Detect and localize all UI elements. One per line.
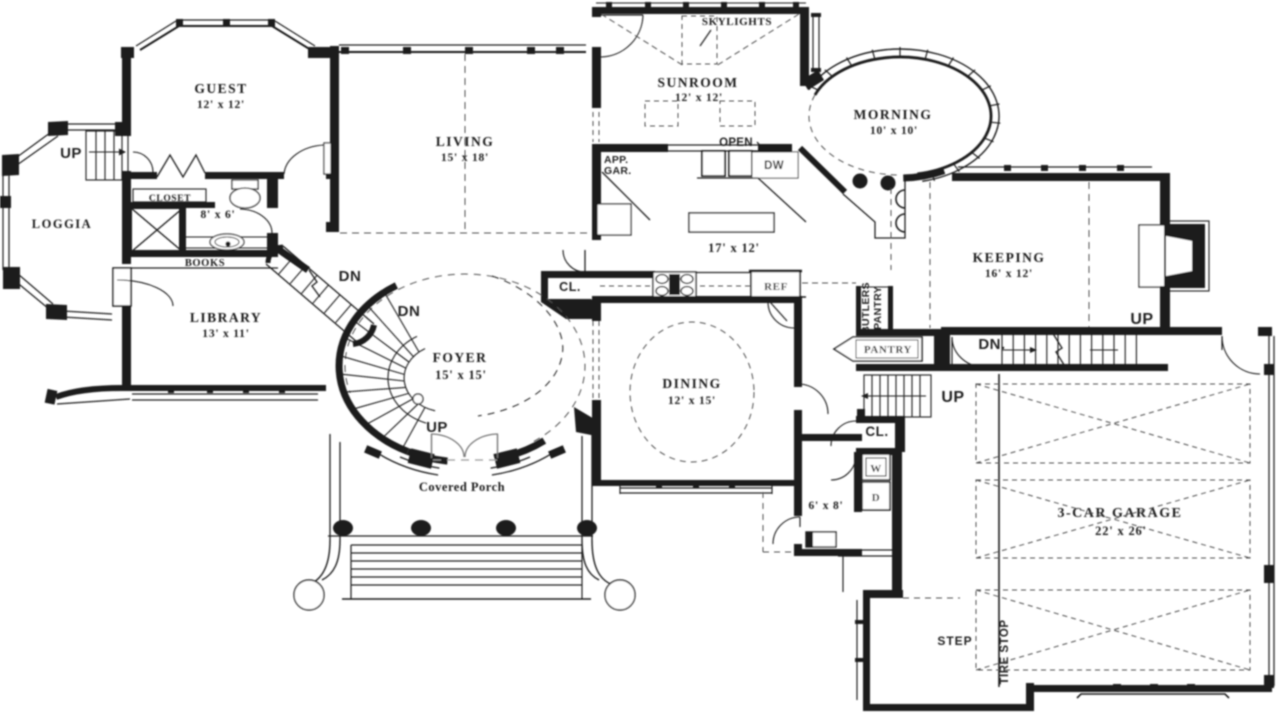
- svg-text:6' x 8': 6' x 8': [809, 500, 844, 512]
- svg-text:PANTRY: PANTRY: [872, 286, 884, 330]
- svg-text:DW: DW: [764, 160, 784, 172]
- svg-text:UP: UP: [426, 419, 448, 436]
- svg-text:REF: REF: [764, 281, 788, 293]
- svg-text:16' x 12': 16' x 12': [985, 268, 1033, 280]
- svg-text:KEEPING: KEEPING: [973, 250, 1046, 265]
- svg-text:GAR.: GAR.: [604, 165, 631, 177]
- svg-text:OPEN: OPEN: [719, 137, 753, 149]
- svg-text:12' x 12': 12' x 12': [197, 99, 245, 111]
- svg-text:DN: DN: [398, 303, 421, 320]
- svg-text:BUTLERS: BUTLERS: [860, 282, 872, 334]
- svg-text:LOGGIA: LOGGIA: [32, 217, 92, 231]
- svg-text:BOOKS: BOOKS: [185, 258, 225, 269]
- svg-text:12' x 15': 12' x 15': [668, 395, 716, 407]
- svg-text:10' x 10': 10' x 10': [870, 125, 918, 137]
- svg-text:W: W: [870, 463, 882, 475]
- svg-text:D: D: [872, 492, 881, 504]
- svg-text:STEP: STEP: [937, 634, 972, 648]
- svg-text:DINING: DINING: [662, 376, 721, 391]
- svg-text:15' x 15': 15' x 15': [435, 368, 487, 382]
- svg-text:22' x 26': 22' x 26': [1095, 524, 1147, 538]
- svg-text:MORNING: MORNING: [854, 107, 933, 122]
- svg-text:TIRE STOP: TIRE STOP: [999, 620, 1011, 685]
- svg-text:CL.: CL.: [865, 424, 888, 439]
- svg-text:LIBRARY: LIBRARY: [190, 310, 262, 325]
- svg-text:UP: UP: [60, 145, 82, 162]
- svg-text:17' x 12': 17' x 12': [708, 241, 760, 255]
- svg-text:GUEST: GUEST: [194, 81, 247, 96]
- svg-text:FOYER: FOYER: [433, 350, 488, 365]
- svg-text:12' x 12': 12' x 12': [675, 92, 723, 104]
- svg-text:SKYLIGHTS: SKYLIGHTS: [702, 16, 772, 28]
- svg-text:PANTRY: PANTRY: [864, 344, 912, 356]
- svg-text:UP: UP: [941, 389, 964, 406]
- svg-text:13' x 11': 13' x 11': [202, 328, 249, 340]
- svg-text:Covered Porch: Covered Porch: [419, 480, 505, 494]
- svg-text:SUNROOM: SUNROOM: [658, 75, 739, 90]
- svg-text:3-CAR GARAGE: 3-CAR GARAGE: [1058, 506, 1183, 521]
- svg-text:8' x 6': 8' x 6': [201, 209, 236, 221]
- svg-text:DN: DN: [339, 268, 362, 285]
- svg-text:UP: UP: [1130, 311, 1153, 328]
- svg-text:CL.: CL.: [559, 280, 581, 294]
